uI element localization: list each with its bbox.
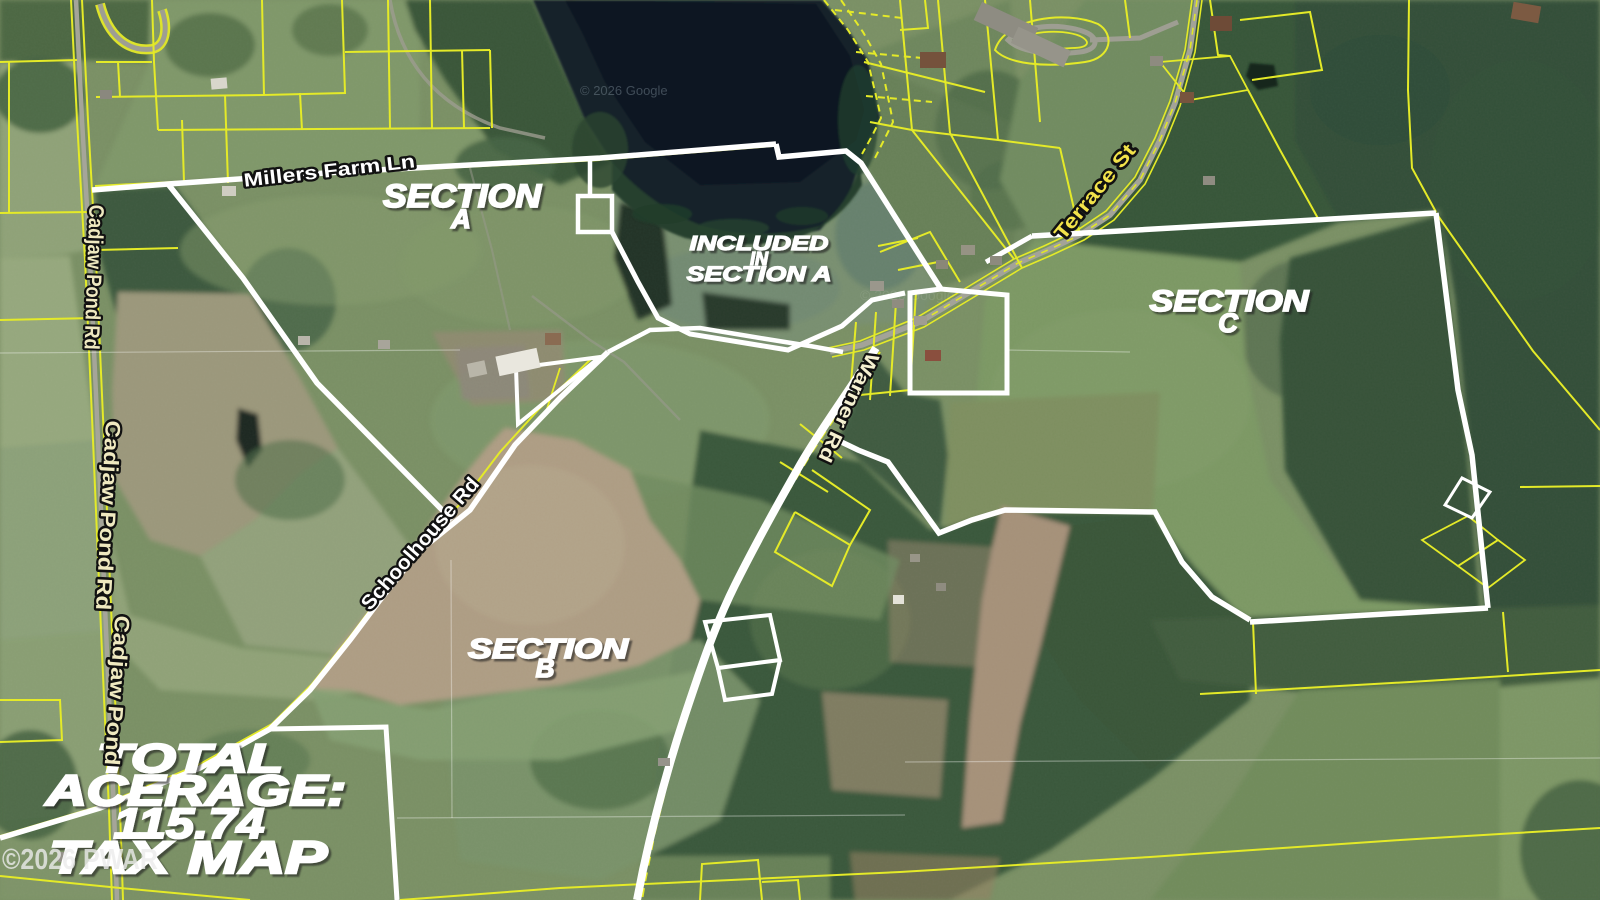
- svg-text:© 2026 Google: © 2026 Google: [860, 287, 955, 303]
- svg-text:C: C: [1218, 308, 1238, 338]
- svg-text:© 2026 Google: © 2026 Google: [580, 83, 668, 98]
- svg-text:©2026 PWAR: ©2026 PWAR: [2, 844, 158, 876]
- svg-text:A: A: [450, 204, 471, 234]
- svg-text:B: B: [536, 653, 555, 683]
- svg-text:SECTION A: SECTION A: [687, 263, 832, 286]
